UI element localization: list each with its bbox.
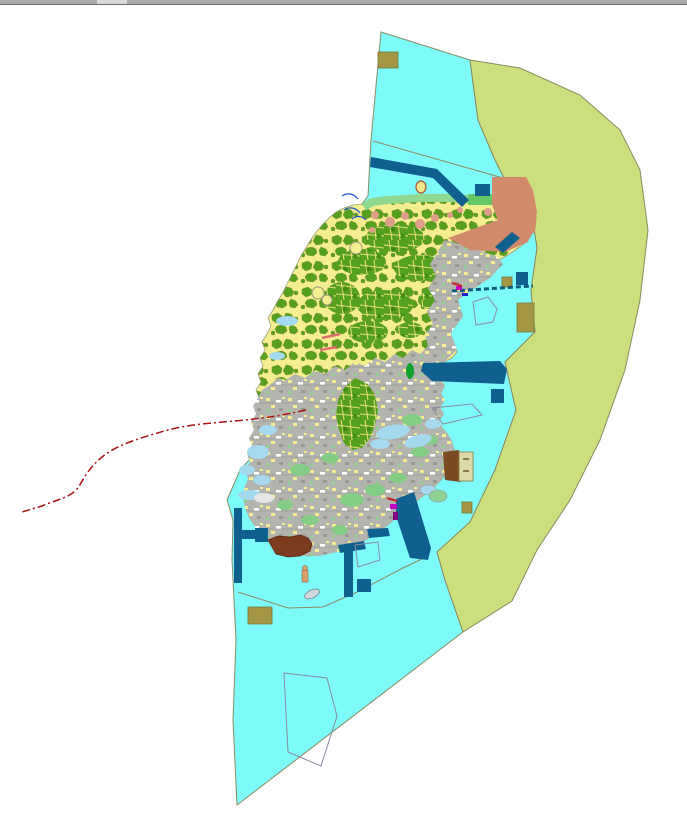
tan-figure-mark	[302, 566, 308, 583]
harbor-block	[475, 184, 490, 196]
east-port-quay	[421, 361, 507, 384]
map-svg[interactable]	[0, 6, 687, 821]
app-screen	[0, 0, 687, 821]
west-breakwater-vertical	[234, 508, 242, 583]
white-flat-area	[254, 493, 274, 503]
top-scrollbar-track[interactable]	[0, 0, 687, 5]
harbor-block	[491, 389, 504, 403]
east-compound	[443, 450, 473, 482]
buoy-marker	[416, 181, 426, 193]
map-canvas[interactable]	[0, 6, 687, 821]
harbor-block	[255, 528, 268, 542]
bright-green-spot	[406, 363, 414, 379]
top-scrollbar-thumb[interactable]	[97, 0, 127, 4]
harbor-block	[516, 272, 528, 285]
harbor-block	[344, 550, 353, 597]
harbor-block	[357, 579, 371, 592]
